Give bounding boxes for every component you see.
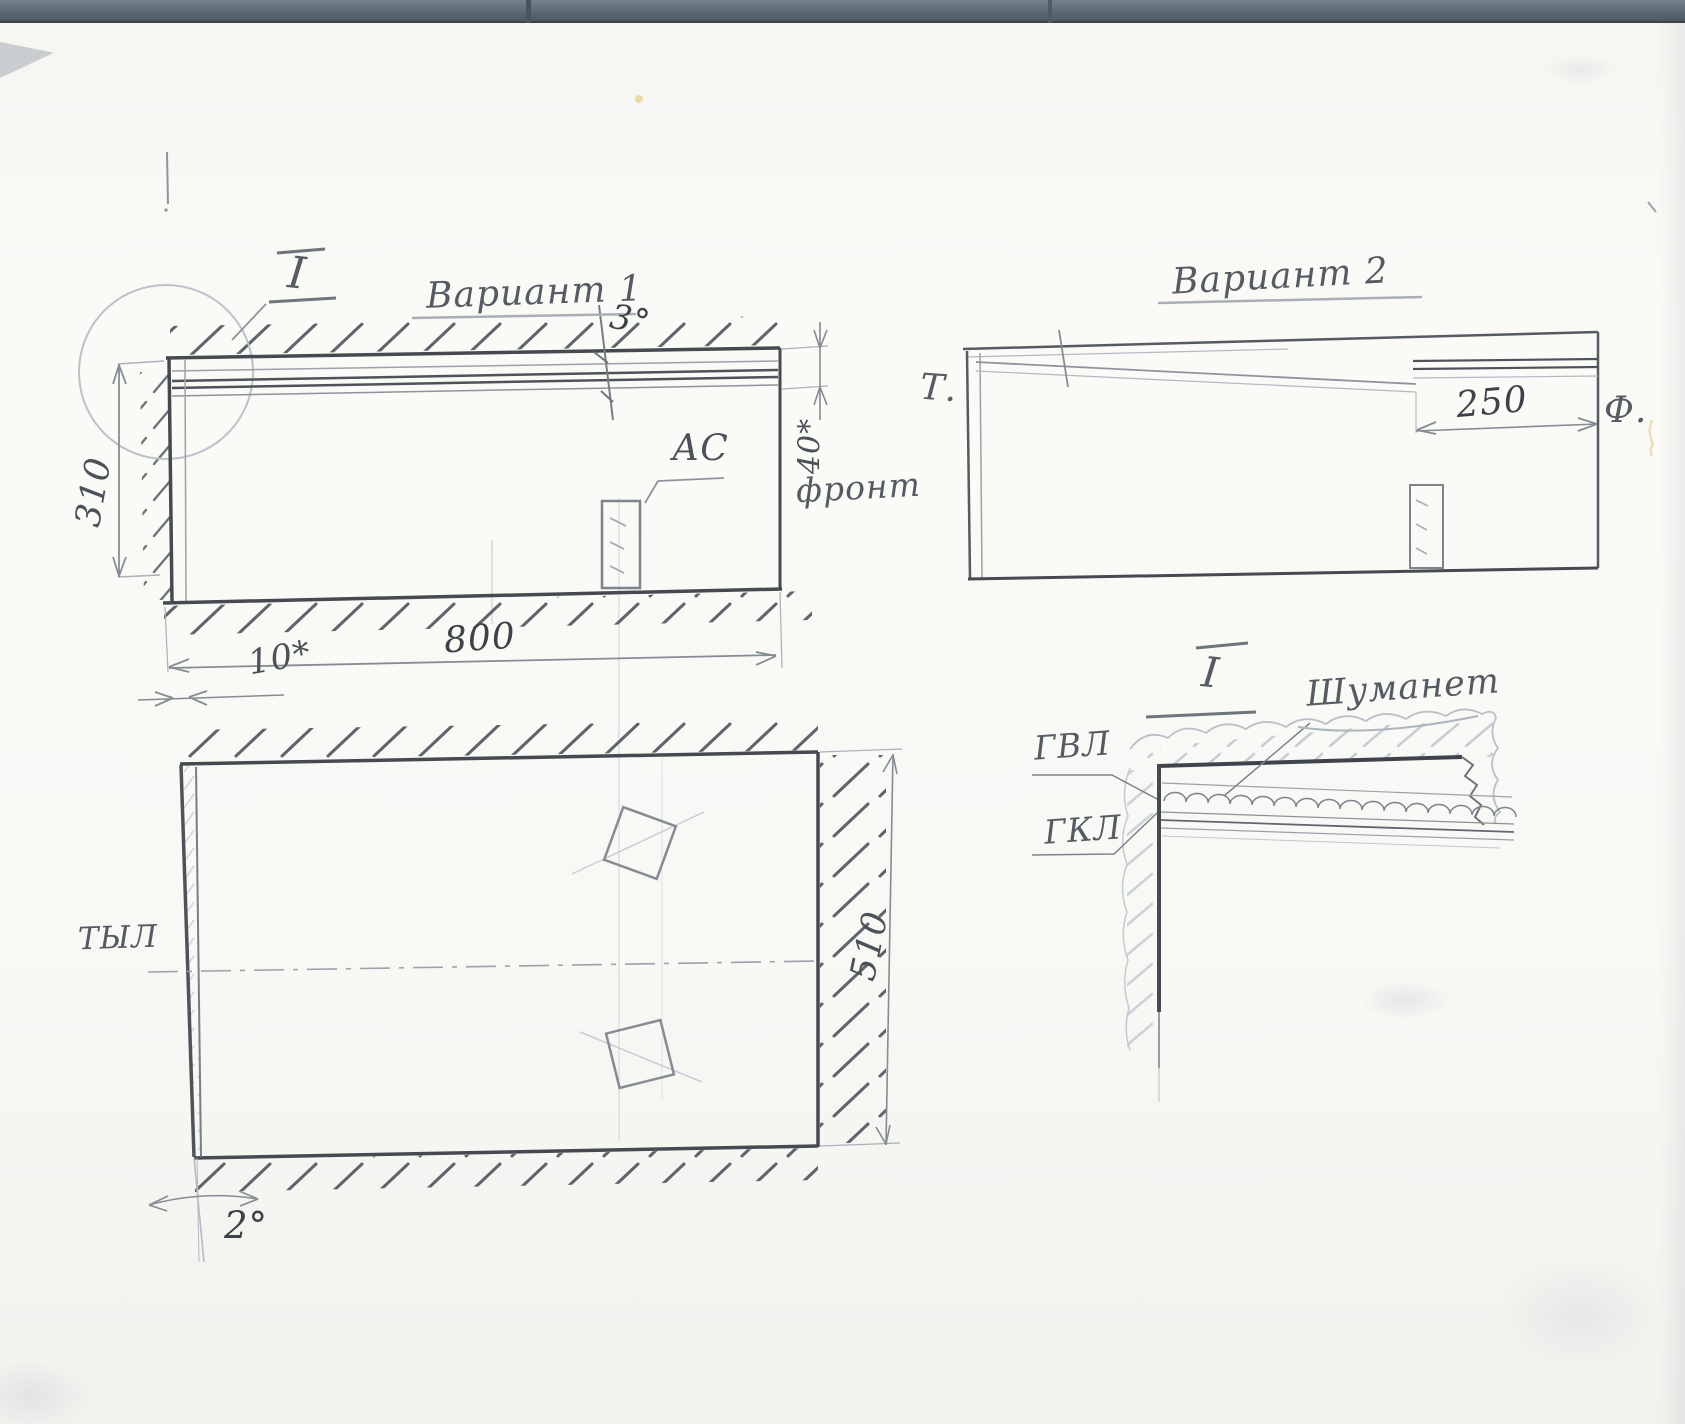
variant2-front-label: Ф. (1604, 390, 1647, 431)
dim-40 (782, 322, 828, 420)
plan-drawing (148, 720, 902, 1262)
speaker-box-front2 (1410, 485, 1443, 568)
variant2-drawing (963, 297, 1598, 579)
speaker-box-front (602, 501, 640, 588)
dim-10-gap (138, 691, 284, 706)
plan-tilt-angle-label: 2° (224, 1204, 268, 1247)
variant1-drop-dim-label: 40* (793, 418, 828, 474)
variant1-front-label: фронт (795, 465, 922, 510)
detail-gvl-label: ГВЛ (1033, 723, 1112, 767)
variant1-slope-angle-label: 3° (607, 297, 654, 343)
scanned-sketch-sheet: I Вариант 1 3° АС 40* фронт 310 800 10* … (0, 0, 1685, 1424)
detail-gkl-label: ГКЛ (1043, 807, 1123, 851)
speaker-square-plan (580, 1020, 702, 1088)
detail-drawing (1032, 643, 1516, 1102)
plan-rear-label: ТЫЛ (77, 919, 158, 958)
speaker-square-plan (572, 807, 704, 879)
stray-marks (164, 95, 1656, 456)
variant1-speaker-label: АС (672, 428, 729, 469)
variant2-rear-label: Т. (919, 367, 959, 411)
variant1-width-dim-label: 800 (443, 616, 517, 662)
variant2-front-dim-label: 250 (1454, 379, 1529, 426)
